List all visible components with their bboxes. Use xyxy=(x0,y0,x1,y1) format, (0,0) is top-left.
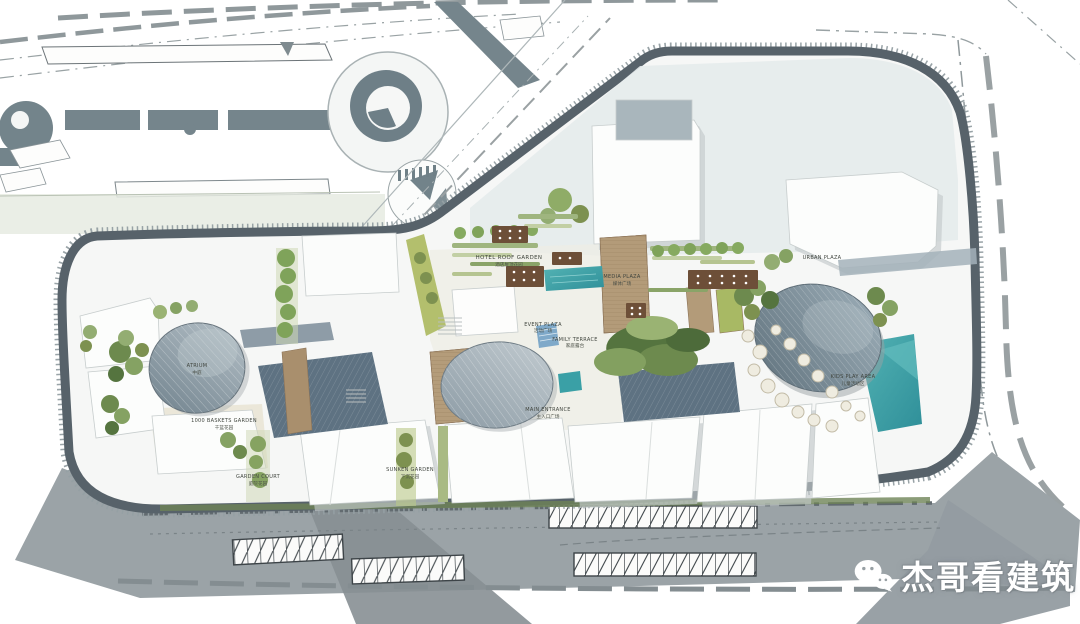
label-baskets-garden: 1000 BASKETS GARDEN xyxy=(191,418,257,424)
label-event-plaza: EVENT PLAZA xyxy=(524,322,562,328)
label-main-entrance-cn: 主入口广场 xyxy=(537,413,560,420)
label-kids-play-cn: 儿童活动区 xyxy=(842,380,865,387)
site-plan-rendering: HOTEL ROOF GARDEN 酒店屋顶花园 MEDIA PLAZA 媒体广… xyxy=(0,0,1080,624)
label-atrium: ATRIUM xyxy=(187,363,208,369)
label-atrium-cn: 中庭 xyxy=(192,369,202,376)
site-plan-screenshot: HOTEL ROOF GARDEN 酒店屋顶花园 MEDIA PLAZA 媒体广… xyxy=(0,0,1080,624)
label-family-terrace-cn: 家庭露台 xyxy=(566,342,585,349)
label-family-terrace: FAMILY TERRACE xyxy=(552,337,598,343)
label-urban-plaza: URBAN PLAZA xyxy=(803,255,842,261)
parking-row xyxy=(549,506,757,528)
upper-walkway-roof xyxy=(616,100,692,140)
label-sunken-garden-cn: 下沉花园 xyxy=(401,473,420,480)
label-baskets-garden-cn: 千篮花园 xyxy=(215,424,234,431)
label-hotel-roof-garden: HOTEL ROOF GARDEN xyxy=(476,255,543,261)
parking-row xyxy=(574,553,756,576)
parking-row xyxy=(232,534,343,565)
label-garden-court-cn: 庭院花园 xyxy=(249,480,268,487)
label-kids-play: KIDS PLAY AREA xyxy=(831,374,876,380)
small-pond xyxy=(558,371,582,393)
white-canopy xyxy=(452,286,518,336)
label-hotel-roof-garden-cn: 酒店屋顶花园 xyxy=(495,261,523,268)
label-main-entrance: MAIN ENTRANCE xyxy=(525,407,570,413)
label-media-plaza: MEDIA PLAZA xyxy=(603,274,641,280)
parking-row xyxy=(352,555,465,584)
label-media-plaza-cn: 媒体广场 xyxy=(613,280,632,287)
label-event-plaza-cn: 活动广场 xyxy=(534,327,553,334)
label-sunken-garden: SUNKEN GARDEN xyxy=(386,467,434,473)
label-garden-court: GARDEN COURT xyxy=(236,474,281,480)
hotel-pool xyxy=(544,266,604,291)
